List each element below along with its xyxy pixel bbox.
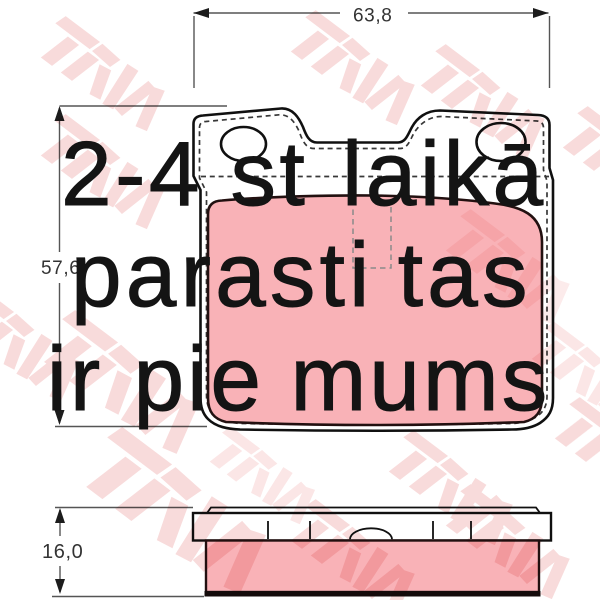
svg-text:16,0: 16,0 [42,541,83,563]
svg-text:parastitas: parastitas [71,225,532,326]
svg-text:63,8: 63,8 [353,6,392,27]
svg-text:2-4stlaikā: 2-4stlaikā [61,124,547,225]
